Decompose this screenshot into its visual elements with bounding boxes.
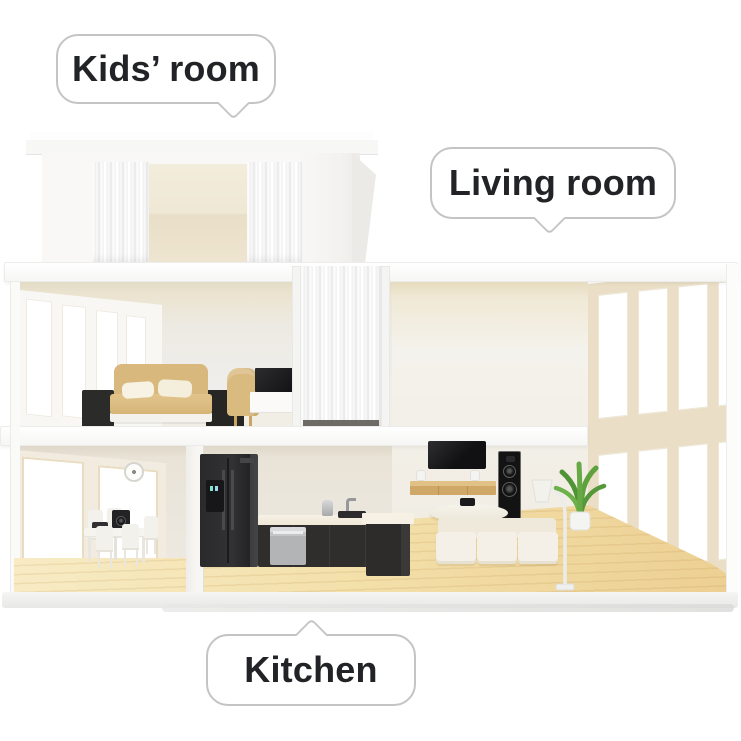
dining-chair [144, 516, 158, 540]
attic-roof-slope [352, 153, 376, 262]
refrigerator [200, 454, 258, 567]
dining-chair [122, 524, 139, 550]
speaker-cone [503, 465, 516, 478]
bubble-tail [295, 618, 328, 651]
chair-leg [98, 552, 100, 568]
base-shadow [162, 604, 734, 612]
label-living-room-text: Living room [449, 162, 657, 204]
kitchen-faucet [346, 498, 356, 512]
speaker-tweeter [506, 456, 515, 462]
right-corner-post [726, 264, 738, 594]
attic-roof-cornice [26, 140, 378, 154]
floating-media-shelf [410, 481, 496, 495]
fridge-water-dispenser [206, 480, 224, 512]
chair-leg [146, 540, 148, 554]
plant-leaf [579, 464, 580, 516]
dishwasher [270, 527, 306, 565]
kettle [322, 500, 333, 516]
bubble-tail [217, 87, 250, 120]
island-cabinet [366, 524, 410, 576]
label-kids-room-text: Kids’ room [72, 48, 260, 90]
curtain-column-frame [292, 266, 301, 434]
label-kitchen[interactable]: Kitchen [206, 634, 416, 706]
chair-leg [136, 550, 138, 566]
bookshelf-speaker [470, 470, 480, 481]
speaker-cone [502, 482, 517, 497]
dispenser-light [215, 486, 218, 491]
label-kids-room[interactable]: Kids’ room [56, 34, 276, 104]
mid-floor-slab [0, 426, 588, 446]
island-countertop [362, 513, 414, 524]
column-curtain [301, 266, 381, 428]
wall-clock [124, 462, 144, 482]
fridge-door-gap [227, 458, 229, 563]
chair-leg [110, 552, 112, 568]
dishwasher-handle [273, 531, 303, 534]
window-pane [678, 283, 708, 410]
remote-control [460, 498, 475, 506]
bubble-tail [533, 202, 566, 235]
window-pane [598, 292, 628, 419]
lamp-shade [532, 480, 552, 502]
attic-curtain-right [247, 162, 302, 263]
bookshelf-speaker [416, 470, 426, 481]
potted-plant [552, 458, 608, 532]
sofa-seat [436, 532, 476, 564]
lamp-base [556, 584, 574, 590]
fridge-badge [240, 458, 254, 463]
shelf-seam [467, 486, 468, 495]
left-corner-post [10, 282, 20, 594]
chair-leg [154, 540, 156, 554]
fridge-handle [231, 470, 234, 530]
bed-pillow [158, 379, 193, 398]
label-kitchen-text: Kitchen [244, 649, 377, 691]
chair-leg [124, 550, 126, 566]
dining-chair [96, 526, 113, 552]
plant-pot [570, 512, 590, 530]
window-pane [638, 288, 668, 415]
label-living-room[interactable]: Living room [430, 147, 676, 219]
wall-tv [428, 441, 486, 469]
bedroom-tv [255, 368, 295, 392]
window-pane [678, 443, 708, 564]
shelf-seam [438, 486, 439, 495]
dispenser-light [210, 486, 213, 491]
table-leg [114, 536, 117, 560]
sofa-seat [477, 532, 517, 564]
house-cutaway-illustration: Kids’ room Living room Kitchen [0, 0, 741, 741]
curtain-column-frame [381, 266, 390, 434]
attic-curtain-left [92, 162, 149, 263]
table-leg [88, 536, 91, 562]
window-pane [26, 299, 52, 418]
bed-pillow [121, 381, 154, 399]
